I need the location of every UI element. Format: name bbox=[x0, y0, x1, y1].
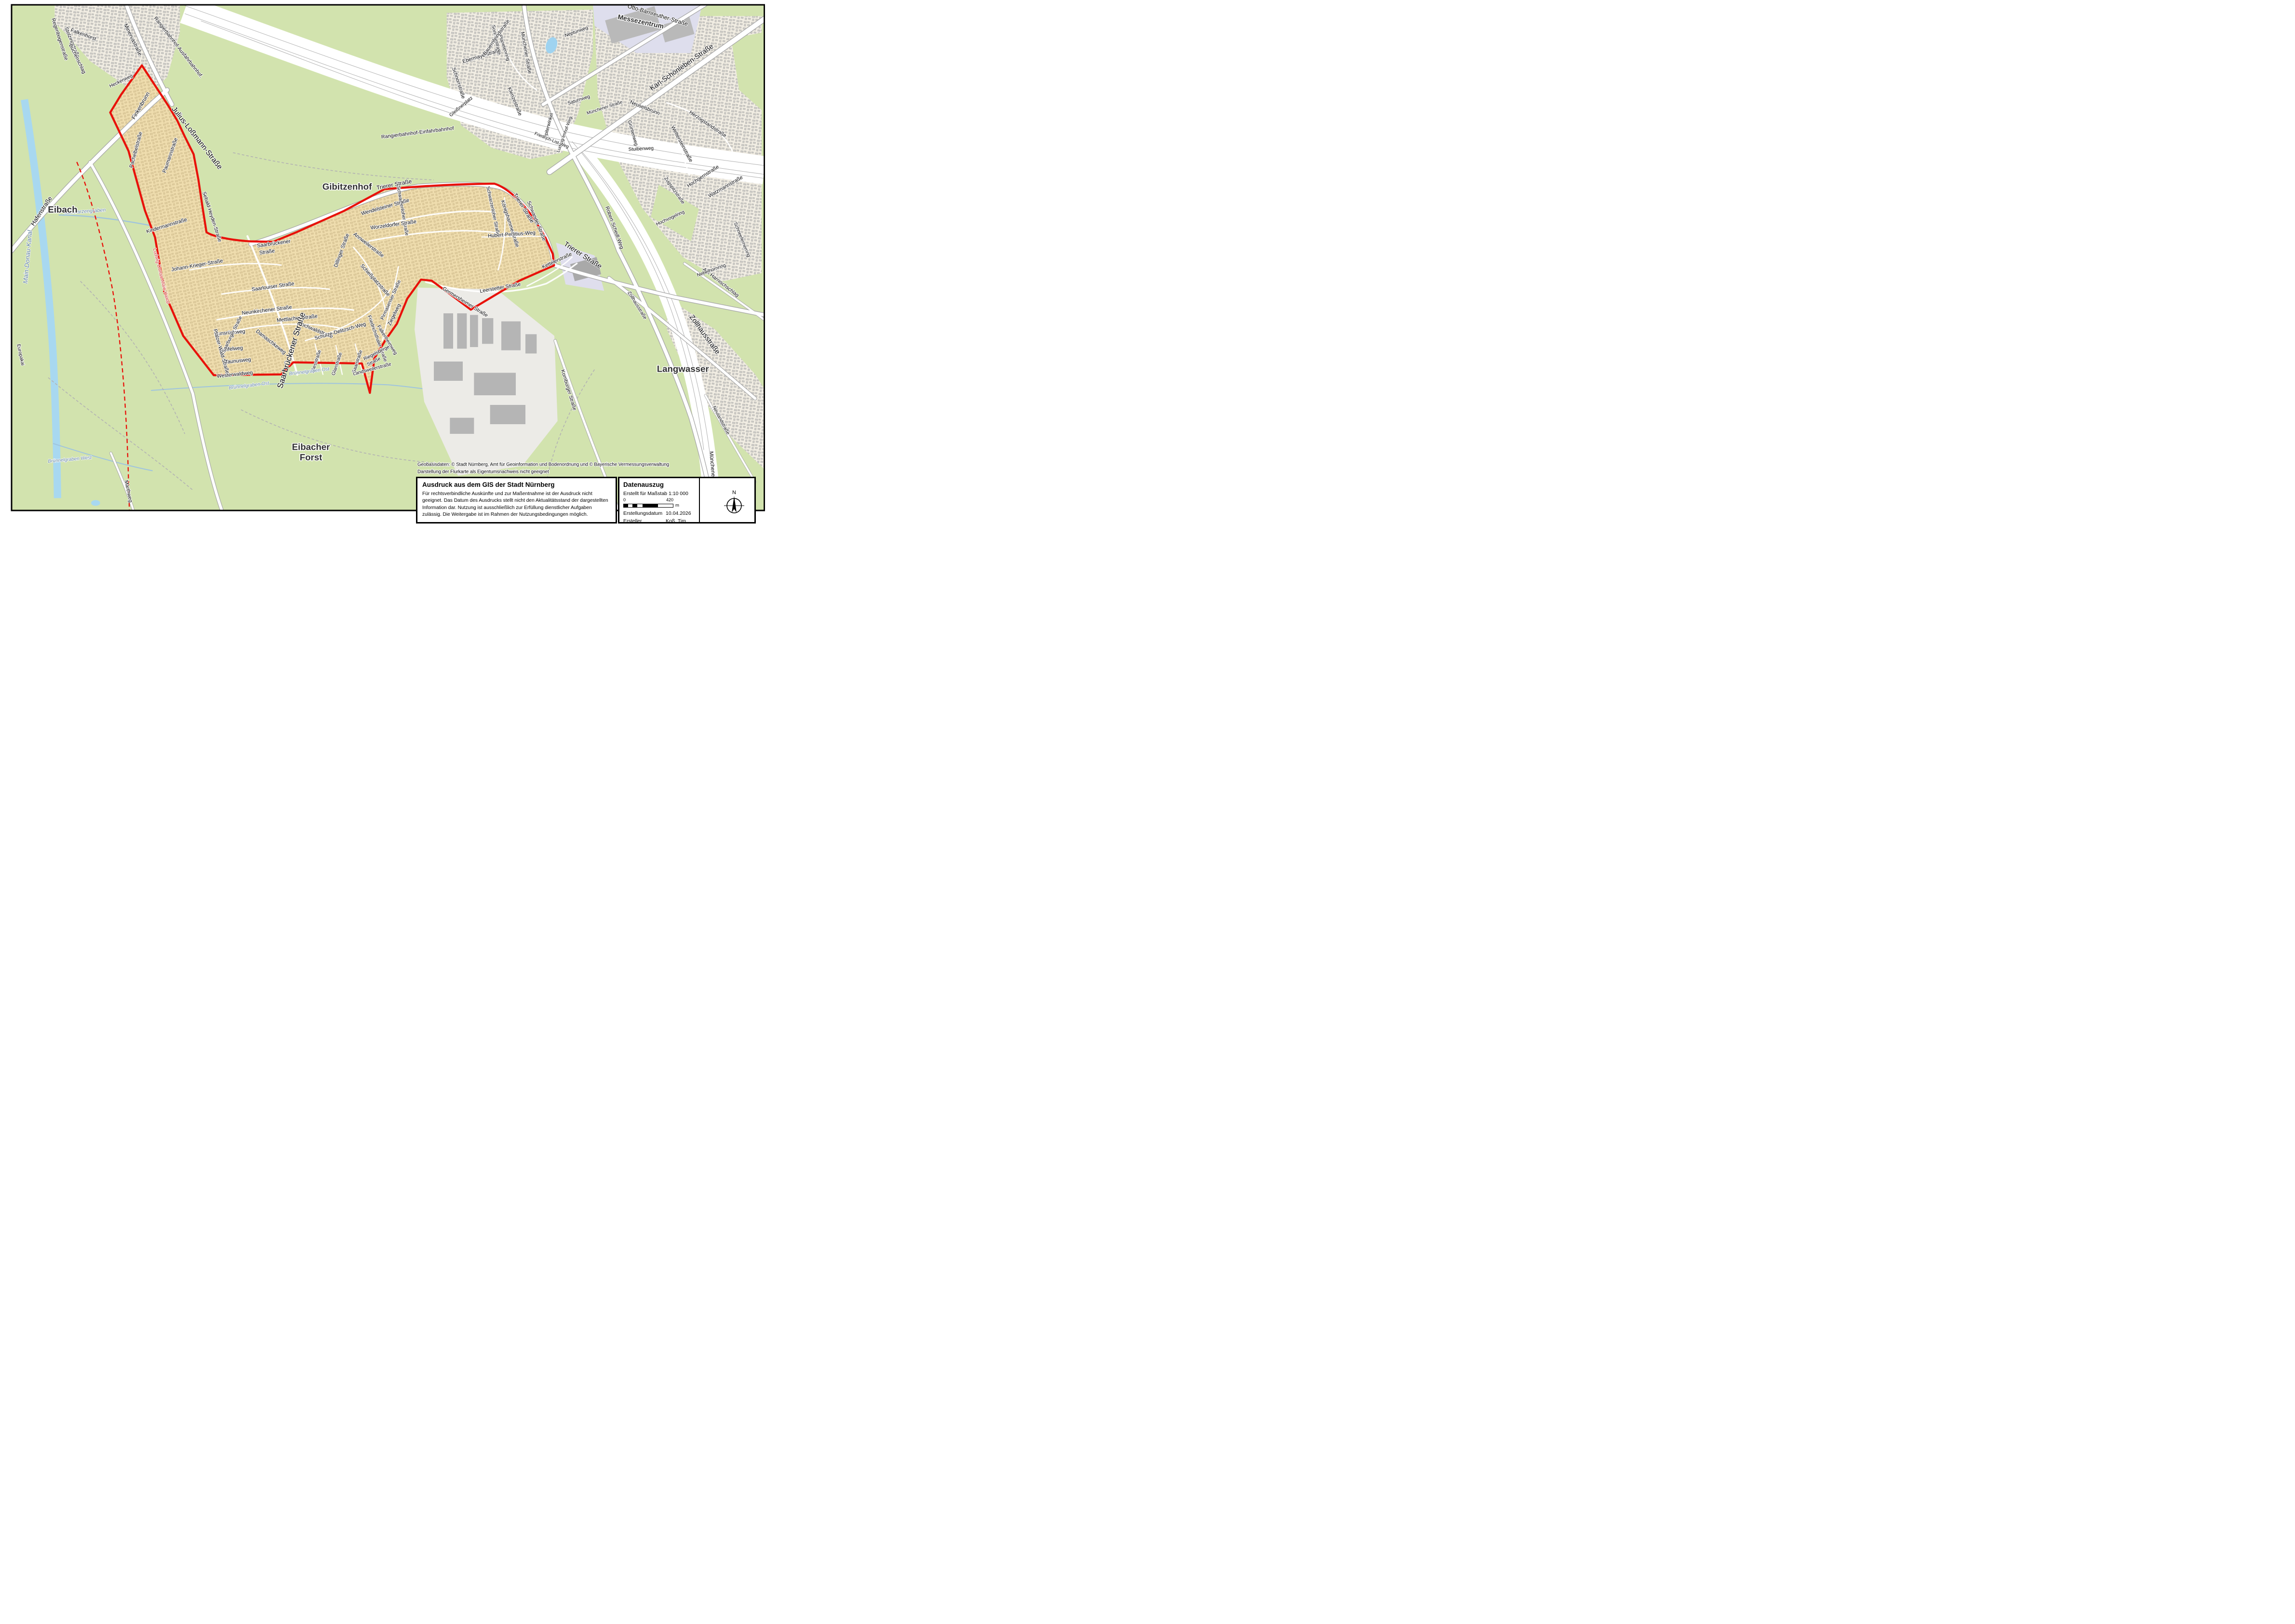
compass-rose: N bbox=[722, 489, 747, 521]
info-box-disclaimer: Ausdruck aus dem GIS der Stadt Nürnberg … bbox=[416, 477, 617, 523]
info-box-data: Datenauszug Erstellt für Maßstab 1:10 00… bbox=[618, 477, 756, 523]
scale-unit: m bbox=[675, 503, 679, 508]
scale-end: 420 bbox=[666, 497, 673, 502]
map-label: Darstellung der Flurkarte als Eigentumsn… bbox=[417, 470, 549, 475]
scale-start: 0 bbox=[623, 497, 626, 502]
map-canvas: RegenbogenstraßeStolzingstraßeFalkenhors… bbox=[0, 0, 765, 541]
databox-title: Datenauszug bbox=[623, 481, 751, 488]
scale-bar-segments bbox=[623, 504, 673, 508]
disclaimer-body: Für rechtsverbindliche Auskünfte und zur… bbox=[422, 491, 611, 519]
map-label: Gibitzenhof bbox=[322, 181, 372, 191]
map-label: Eibach bbox=[48, 204, 77, 215]
scale-bar: 0 420 m bbox=[623, 497, 681, 508]
map-label: Forst bbox=[300, 452, 322, 462]
gis-print-page: RegenbogenstraßeStolzingstraßeFalkenhors… bbox=[0, 0, 765, 541]
map-label: Langwasser bbox=[657, 364, 709, 374]
disclaimer-title: Ausdruck aus dem GIS der Stadt Nürnberg bbox=[422, 481, 611, 488]
map-label: Geobasisdaten: © Stadt Nürnberg, Amt für… bbox=[417, 462, 669, 468]
compass-north-label: N bbox=[732, 490, 736, 496]
box-divider bbox=[699, 478, 700, 522]
map-label: Eibacher bbox=[292, 442, 330, 452]
